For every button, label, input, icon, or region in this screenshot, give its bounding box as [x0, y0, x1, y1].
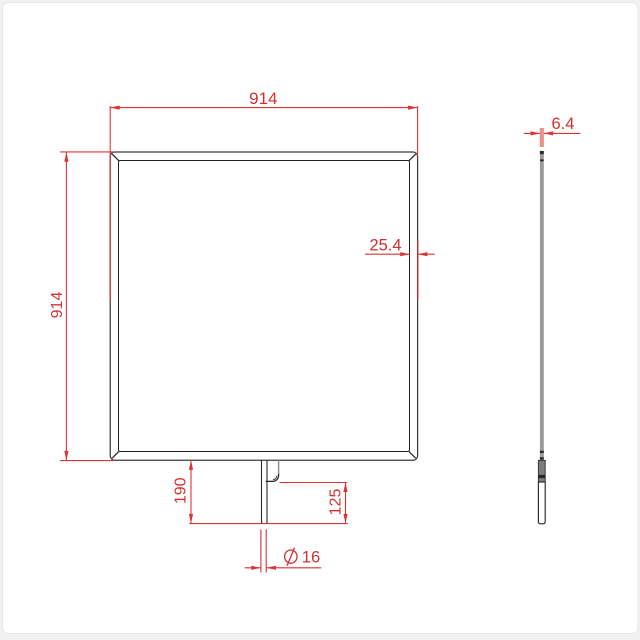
svg-text:125: 125	[328, 489, 345, 516]
svg-text:25.4: 25.4	[369, 236, 401, 254]
svg-text:190: 190	[173, 477, 190, 504]
svg-text:914: 914	[49, 292, 66, 319]
svg-text:16: 16	[302, 549, 320, 567]
svg-text:914: 914	[249, 89, 277, 108]
svg-text:6.4: 6.4	[552, 115, 575, 133]
